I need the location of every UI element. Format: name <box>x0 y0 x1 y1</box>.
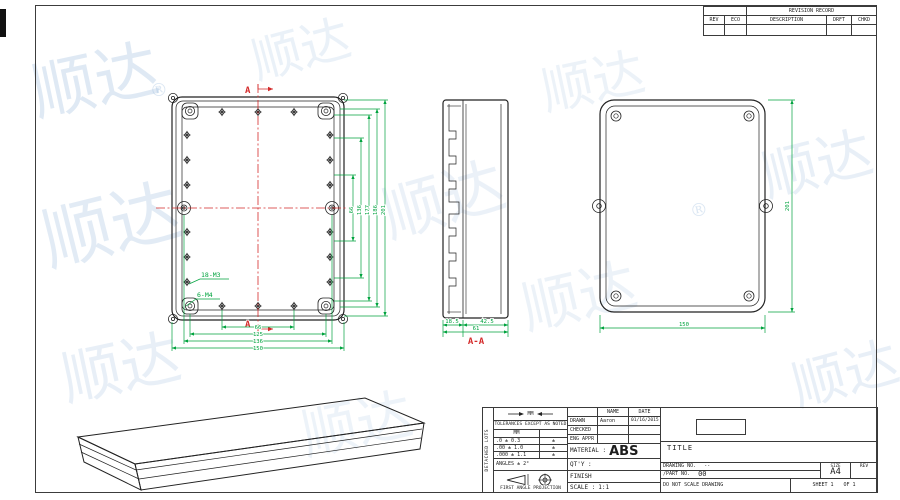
part-no-value: 00 <box>698 471 706 478</box>
datum-arrow-left-icon <box>508 410 524 418</box>
size-value: A4 <box>830 468 841 477</box>
drawing-sheet: 顺达 顺达 顺达 顺达 顺达 顺达 顺达 顺达 顺达 顺达 ® ® REVISI… <box>0 0 900 500</box>
section-marker-top: A <box>245 84 273 96</box>
svg-text:A: A <box>245 320 251 330</box>
svg-text:136: 136 <box>357 205 363 215</box>
mid-edge-boss-icon <box>593 200 773 213</box>
datum-symbol-row: MM <box>493 407 568 421</box>
first-angle-projection-icon <box>505 473 557 485</box>
svg-text:A: A <box>245 86 251 96</box>
datum-arrow-right-icon <box>537 410 553 418</box>
section-view-dims: 18.5 42.5 61 <box>443 319 508 337</box>
drawing-no-label: DRAWING NO. <box>663 464 696 469</box>
material-label: MATERIAL : <box>570 448 606 454</box>
svg-text:42.5: 42.5 <box>480 319 493 325</box>
datum-symbol-text: MM <box>527 412 533 417</box>
svg-text:201: 201 <box>381 205 387 215</box>
label-6-m4: 6-M4 <box>186 291 220 306</box>
rev-cell: REV <box>850 462 878 479</box>
scale-value: 1:1 <box>598 485 609 491</box>
back-view: 201 150 <box>593 100 796 333</box>
svg-text:186: 186 <box>373 205 379 215</box>
svg-text:125: 125 <box>253 332 263 338</box>
logo-box <box>696 419 746 435</box>
svg-text:18-M3: 18-M3 <box>201 271 221 279</box>
svg-text:150: 150 <box>679 322 689 328</box>
svg-text:66: 66 <box>349 207 355 214</box>
label-18-m3: 18-M3 <box>189 271 229 284</box>
title-cell: TITLE <box>660 441 878 463</box>
scale-label: SCALE : <box>570 485 595 491</box>
scale-cell: SCALE : 1:1 <box>567 482 661 493</box>
projection-label: FIRST ANGLE PROJECTION <box>500 487 561 492</box>
svg-text:66: 66 <box>255 325 262 331</box>
material-cell: MATERIAL : ABS <box>567 443 661 459</box>
svg-text:61: 61 <box>473 326 480 332</box>
front-view-vertical-dims: 66 136 177 186 201 <box>334 100 388 316</box>
svg-text:177: 177 <box>365 205 371 215</box>
section-label: A-A <box>468 337 485 347</box>
projection-cell: FIRST ANGLE PROJECTION <box>493 470 568 493</box>
logo-cell <box>660 407 878 442</box>
side-strip-text: DETACHED LOTS <box>486 429 491 471</box>
svg-text:201: 201 <box>785 201 791 211</box>
svg-text:18.5: 18.5 <box>445 319 458 325</box>
back-view-dims: 201 150 <box>600 100 795 333</box>
sheet-cell: SHEET 1 OF 1 <box>790 478 878 493</box>
svg-text:136: 136 <box>253 339 263 345</box>
section-view: 18.5 42.5 61 A-A <box>443 100 508 347</box>
title-block: DETACHED LOTS MM TOLERANCES EXCEPT AS NO… <box>482 407 878 493</box>
drawing-no-value: -- <box>704 464 710 469</box>
isometric-view <box>78 398 424 490</box>
front-view: A A 18-M3 6-M4 <box>156 84 388 352</box>
sheet-label: SHEET 1 <box>812 483 833 488</box>
do-not-scale-cell: DO NOT SCALE DRAWING <box>660 478 791 493</box>
size-cell: SIZE A4 <box>820 462 851 479</box>
svg-text:150: 150 <box>253 346 263 352</box>
part-no-label: /PART NO. <box>663 472 690 477</box>
sheet-of-label: OF 1 <box>844 483 856 488</box>
svg-text:6-M4: 6-M4 <box>197 291 213 299</box>
material-value: ABS <box>609 445 638 458</box>
